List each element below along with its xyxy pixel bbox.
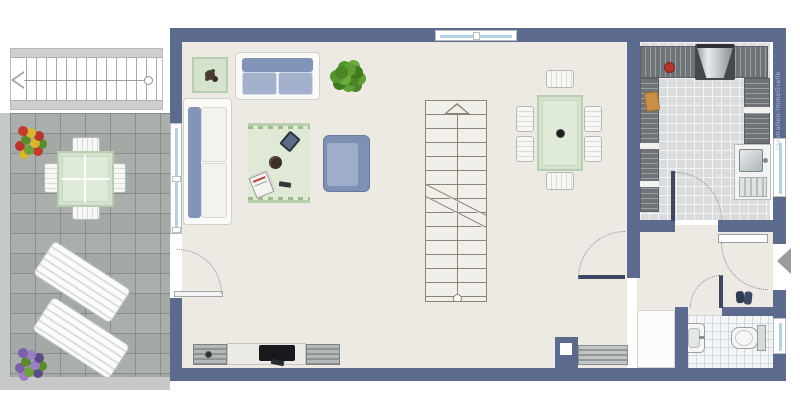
kettle (664, 62, 675, 73)
sofa3-seat-bottom (201, 163, 227, 218)
stair-stringer-top (11, 49, 162, 58)
sink-faucet (763, 158, 768, 163)
stair-direction-arrow-fill (14, 73, 24, 87)
wall-bathroom-left (675, 307, 688, 368)
sofa2-seat-left (242, 72, 277, 95)
flower-bush-purple (18, 348, 28, 358)
stair-stringer-bottom (11, 100, 162, 109)
wall-bottom (170, 368, 786, 381)
stairs-walk-line (457, 114, 458, 298)
potted-plant-small (205, 70, 215, 80)
sofa2-seat-right (278, 72, 313, 95)
tv-lowboard (193, 343, 340, 366)
shoes (735, 289, 756, 308)
decor-bowl (269, 156, 282, 169)
table-bowl (556, 129, 565, 138)
speaker-knob (205, 351, 212, 358)
tablet (279, 130, 301, 152)
magazines (249, 171, 275, 199)
terrace-edge-left (0, 113, 10, 390)
sink-bowl (739, 149, 763, 172)
sofa-three-seat (183, 98, 232, 225)
counter-gap-1 (640, 143, 659, 149)
radiator (578, 345, 628, 365)
counter-gap-3 (744, 107, 770, 113)
basin-faucet (699, 336, 705, 339)
sofa3-backrest (188, 107, 201, 218)
sofa3-seat-top (201, 107, 227, 162)
toilet-bowl (731, 327, 758, 349)
garden-table (57, 151, 114, 207)
dining-chair-west-2 (516, 136, 534, 162)
sofa2-backrest (242, 58, 313, 72)
rug (248, 123, 310, 203)
dining-table (537, 95, 583, 171)
kitchen-sink-unit (734, 144, 771, 200)
living-room-window-top (435, 30, 517, 41)
cube-armchair-seat (327, 143, 358, 186)
remote-control (279, 181, 292, 188)
flower-bush-red (18, 126, 28, 136)
terrace-edge-bottom (0, 377, 170, 390)
wall-left-upper (170, 38, 182, 123)
dining-chair-east-1 (584, 106, 602, 132)
toilet-tank (757, 325, 766, 351)
glazing-mullion-2 (172, 227, 181, 233)
rug-fringe-top (248, 126, 310, 129)
chimney-block (555, 337, 578, 368)
glazing-mullion-1 (172, 176, 181, 182)
garden-table-cross-v (84, 155, 86, 203)
dining-chair-north (546, 70, 574, 88)
tablet-screen (282, 133, 298, 149)
wall-kitchen-bottom-right (718, 220, 773, 232)
wall-bathroom-top (722, 307, 773, 316)
kitchen-window-glass (779, 143, 782, 194)
front-door-leaf (718, 234, 768, 243)
sink-drainer (739, 177, 767, 197)
wall-kitchen-partition (627, 42, 640, 278)
counter-gap-2 (640, 181, 659, 187)
dining-chair-east-2 (584, 136, 602, 162)
hallway-closet (637, 310, 675, 368)
bathroom-window-glass (779, 323, 782, 351)
shoe-right (743, 291, 752, 305)
wall-kitchen-bottom-left (627, 220, 675, 232)
watermark-text: Illustration:ImmoGrafik (775, 71, 782, 150)
toilet-seat (735, 330, 753, 346)
stairs-up-arrow-fill (447, 105, 467, 113)
chimney-flue (560, 343, 572, 355)
cutting-board (644, 91, 661, 112)
stair-treads (17, 58, 157, 100)
dining-chair-south (546, 172, 574, 190)
side-table-with-plant (192, 57, 228, 93)
sofa-two-seat (235, 52, 320, 100)
green-plant (335, 66, 348, 79)
exterior-stairs (10, 48, 163, 110)
interior-staircase (425, 100, 487, 302)
terrace-glazing-left (170, 123, 182, 234)
stair-walk-end (144, 76, 153, 85)
entrance-arrow-icon (777, 248, 791, 274)
lowboard-right-cabinet (306, 344, 340, 365)
stair-walk-line (21, 80, 147, 81)
cube-armchair (323, 135, 370, 192)
bathroom-window-right (773, 318, 786, 354)
dining-chair-west-1 (516, 106, 534, 132)
tv-screen (259, 345, 295, 361)
stairs-walk-end (453, 294, 462, 302)
window-mullion (473, 32, 480, 40)
floor-plan: Illustration:ImmoGrafik (0, 0, 800, 420)
